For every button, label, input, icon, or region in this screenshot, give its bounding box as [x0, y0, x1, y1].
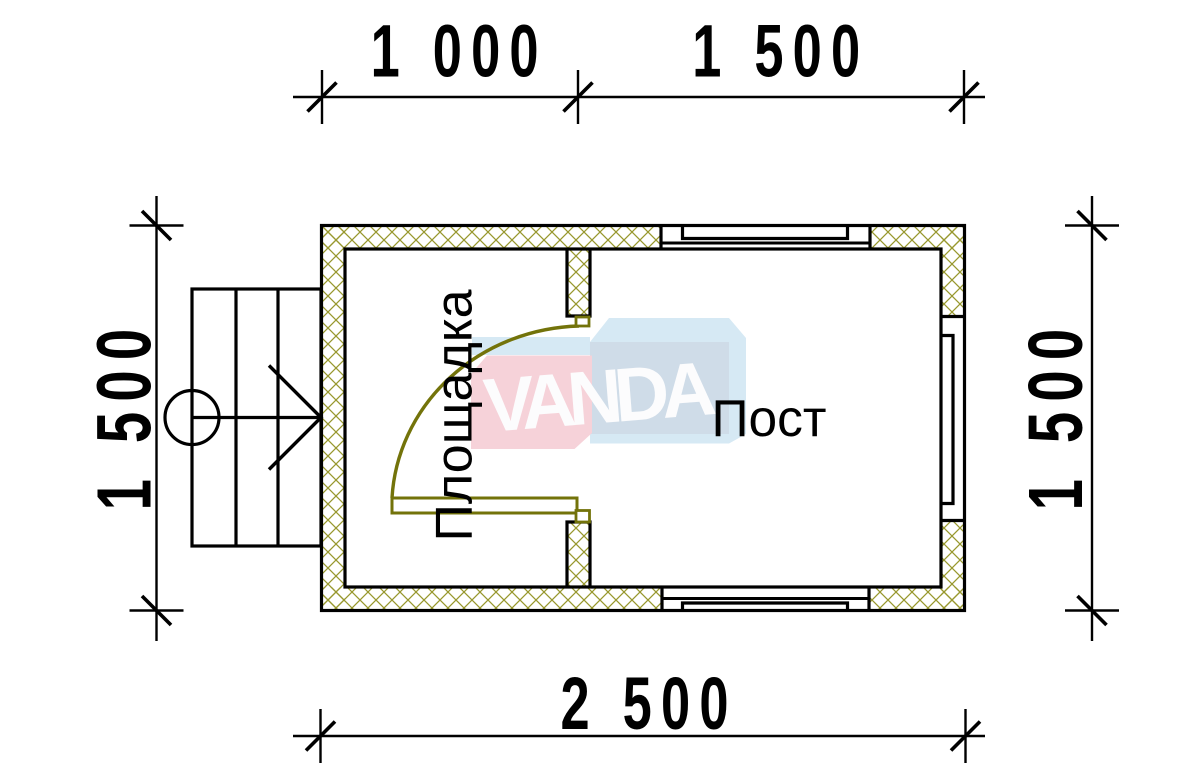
svg-text:1 500: 1 500: [692, 10, 869, 93]
svg-text:2 500: 2 500: [561, 662, 738, 745]
svg-text:1 500: 1 500: [1013, 319, 1099, 511]
svg-text:Пост: Пост: [712, 389, 827, 447]
svg-text:Площадка: Площадка: [426, 289, 484, 541]
svg-text:VANDA: VANDA: [481, 346, 718, 449]
svg-text:1 000: 1 000: [371, 10, 548, 93]
svg-text:1 500: 1 500: [82, 319, 168, 511]
